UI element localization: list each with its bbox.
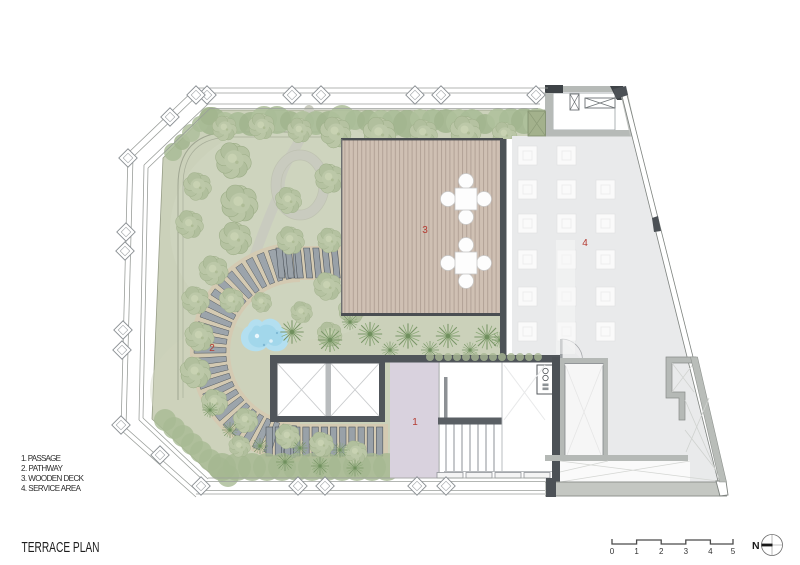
svg-text:1. PASSAGE: 1. PASSAGE — [21, 454, 61, 463]
svg-text:4: 4 — [708, 547, 713, 556]
svg-text:5: 5 — [731, 547, 736, 556]
svg-text:1: 1 — [412, 417, 418, 428]
svg-text:3. WOODEN DECK: 3. WOODEN DECK — [21, 474, 85, 483]
svg-text:4. SERVICE AREA: 4. SERVICE AREA — [21, 484, 82, 493]
svg-text:4: 4 — [582, 238, 588, 249]
svg-text:1: 1 — [634, 547, 639, 556]
svg-text:3: 3 — [684, 547, 689, 556]
svg-text:2. PATHWAY: 2. PATHWAY — [21, 464, 64, 473]
svg-text:2: 2 — [209, 343, 215, 354]
svg-text:0: 0 — [610, 547, 615, 556]
svg-text:2: 2 — [659, 547, 664, 556]
svg-text:N: N — [752, 540, 760, 552]
svg-text:TERRACE PLAN: TERRACE PLAN — [22, 540, 100, 556]
svg-text:3: 3 — [422, 225, 428, 236]
